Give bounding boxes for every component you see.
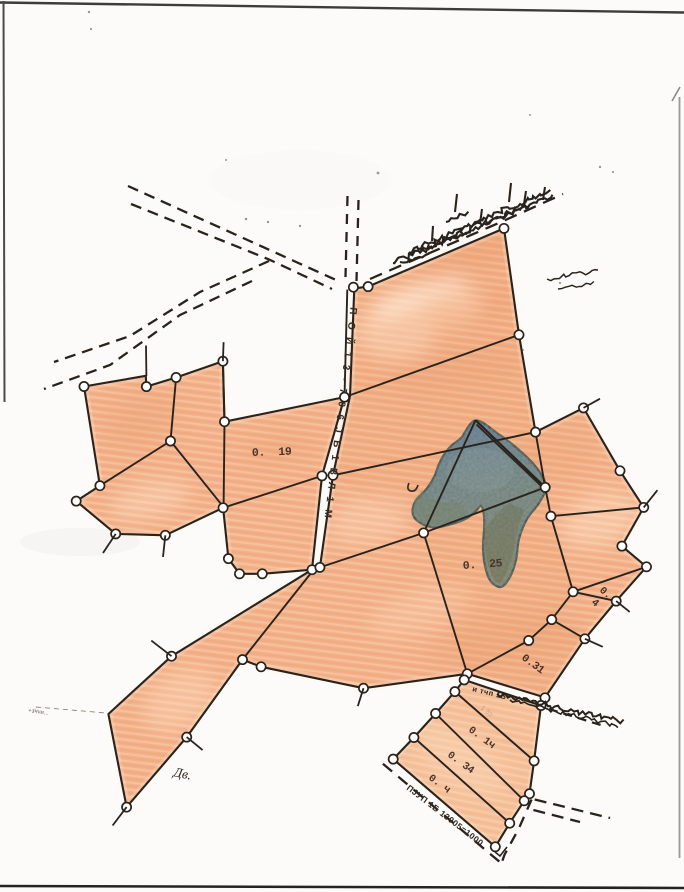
svg-text:0. 25: 0. 25 — [462, 557, 503, 573]
svg-text:0. 19: 0. 19 — [252, 446, 292, 460]
